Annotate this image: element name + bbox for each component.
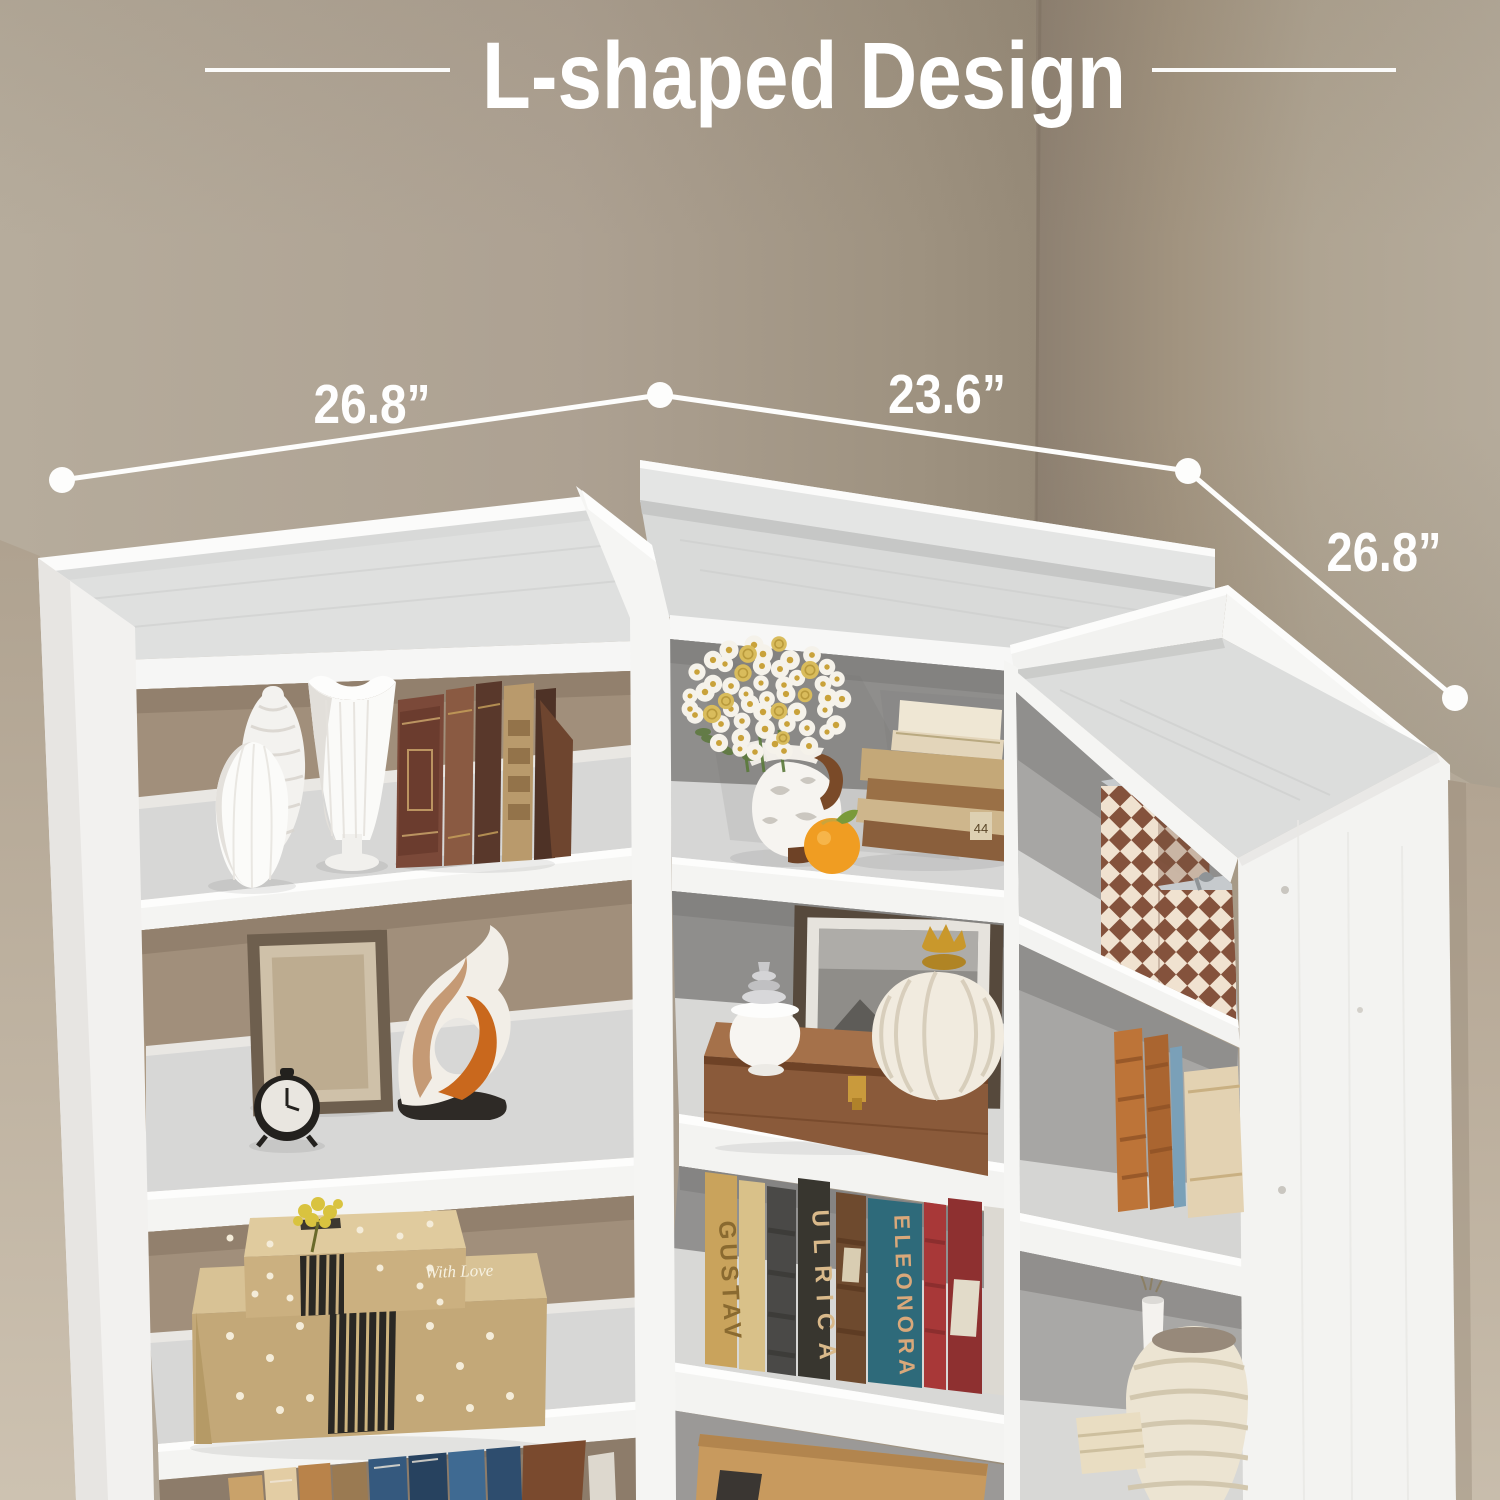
svg-text:26.8”: 26.8” xyxy=(314,373,431,435)
svg-text:23.6”: 23.6” xyxy=(888,363,1006,425)
svg-text:26.8”: 26.8” xyxy=(1327,521,1442,583)
svg-text:With Love: With Love xyxy=(424,1261,494,1282)
svg-text:L-shaped Design: L-shaped Design xyxy=(482,23,1126,129)
svg-text:44: 44 xyxy=(974,821,988,836)
